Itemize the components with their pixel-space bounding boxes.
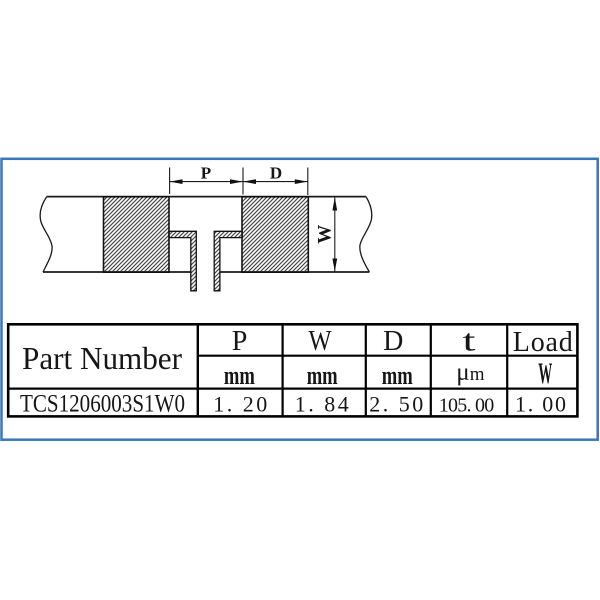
svg-text:mm: mm xyxy=(382,361,413,390)
svg-text:W: W xyxy=(314,225,335,244)
svg-text:P: P xyxy=(232,326,248,357)
svg-text:W: W xyxy=(538,357,552,390)
svg-text:Part Number: Part Number xyxy=(22,341,182,376)
svg-text:1. 84: 1. 84 xyxy=(295,391,349,416)
svg-text:TCS1206003S1W0: TCS1206003S1W0 xyxy=(20,391,185,418)
svg-text:P: P xyxy=(201,164,211,183)
svg-text:mm: mm xyxy=(307,361,338,390)
svg-text:W: W xyxy=(309,326,332,357)
svg-text:t: t xyxy=(463,322,477,357)
svg-text:1. 20: 1. 20 xyxy=(213,391,267,416)
svg-text:D: D xyxy=(383,326,403,357)
svg-text:mm: mm xyxy=(224,361,255,390)
svg-text:μm: μm xyxy=(456,359,484,386)
svg-text:D: D xyxy=(270,164,282,183)
svg-text:1. 00: 1. 00 xyxy=(515,391,566,416)
svg-text:105. 00: 105. 00 xyxy=(439,394,495,416)
svg-text:2. 50: 2. 50 xyxy=(369,391,423,416)
svg-text:Load: Load xyxy=(513,327,573,358)
